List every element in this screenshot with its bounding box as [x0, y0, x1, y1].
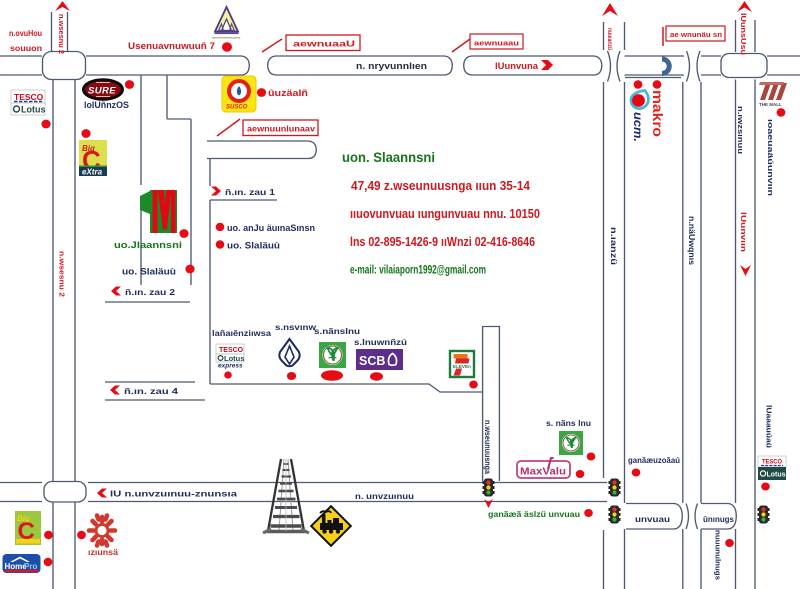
- svg-text:lUunvuna: lUunvuna: [495, 61, 539, 72]
- svg-text:n. unvzuınuu: n. unvzuınuu: [355, 491, 414, 501]
- svg-text:uo.Jlaannsni: uo.Jlaannsni: [114, 240, 182, 251]
- svg-text:makro: makro: [650, 90, 665, 137]
- svg-text:unvuau: unvuau: [635, 514, 670, 524]
- svg-text:ñ.ın. zau 1: ñ.ın. zau 1: [225, 187, 275, 197]
- svg-text:TESCO: TESCO: [14, 92, 44, 102]
- svg-text:s.nãnslnu: s.nãnslnu: [314, 326, 360, 336]
- svg-text:SCB: SCB: [359, 354, 385, 368]
- svg-text:lUaaauúaü: lUaaauúaü: [765, 405, 774, 448]
- svg-text:ganãæã äslzü unvuau: ganãæã äslzü unvuau: [488, 509, 580, 519]
- svg-text:ızıunsä: ızıunsä: [88, 548, 119, 557]
- svg-text:lañaıěnziıwsa: lañaıěnziıwsa: [212, 328, 271, 338]
- svg-text:n.ıanzü: n.ıanzü: [609, 227, 618, 265]
- svg-text:aewnuaau: aewnuaau: [474, 39, 520, 48]
- svg-text:Lotus: Lotus: [21, 105, 46, 115]
- svg-text:aewnuaaU: aewnuaaU: [293, 39, 355, 49]
- svg-text:ııuovunvuau ıungunvuau nnu. 10: ııuovunvuau ıungunvuau nnu. 10150: [350, 206, 540, 221]
- svg-text:uo. anJu äuınaSınsn: uo. anJu äuınaSınsn: [227, 223, 315, 234]
- svg-text:s.lnuwnñzú: s.lnuwnñzú: [354, 337, 407, 347]
- svg-text:lUunsUsu: lUunsUsu: [739, 13, 748, 55]
- svg-text:ñ.ın. zau 4: ñ.ın. zau 4: [124, 386, 178, 396]
- svg-text:THE MALL: THE MALL: [759, 102, 782, 107]
- svg-text:TESCO: TESCO: [219, 347, 244, 354]
- svg-text:souuon: souuon: [10, 43, 42, 53]
- svg-text:uo. Slaläuù: uo. Slaläuù: [122, 267, 176, 278]
- svg-text:express: express: [218, 363, 243, 370]
- svg-text:n.ıwzsınuu: n.ıwzsınuu: [736, 106, 745, 155]
- svg-text:ganãæuzoãaú: ganãæuzoãaú: [628, 455, 680, 465]
- svg-text:lns 02-895-1426-9 ııWnzi 02-41: lns 02-895-1426-9 ııWnzi 02-416-8646: [350, 234, 535, 249]
- svg-text:MaxValu: MaxValu: [520, 467, 566, 478]
- svg-text:uo. Slaläuù: uo. Slaläuù: [227, 241, 280, 252]
- svg-text:annunvuusenuavnu: annunvuusenuavnu: [212, 36, 241, 40]
- svg-text:uon. Slaannsni: uon. Slaannsni: [342, 149, 435, 165]
- svg-text:n.wseunuusnga: n.wseunuusnga: [483, 420, 492, 474]
- svg-text:Lotus: Lotus: [767, 472, 786, 479]
- svg-text:eXtra: eXtra: [82, 168, 103, 177]
- svg-text:s.nsvınw: s.nsvınw: [275, 322, 316, 332]
- svg-text:lU n.unvzuınuu-znunsıa: lU n.unvzuınuu-znunsıa: [110, 489, 237, 499]
- svg-text:ñ.ın. zau 2: ñ.ın. zau 2: [125, 287, 175, 297]
- svg-text:n. nryvunnlıen: n. nryvunnlıen: [356, 61, 427, 71]
- svg-text:ûnınugs: ûnınugs: [703, 514, 734, 524]
- svg-text:ıoaeuaäúunvıın: ıoaeuaäúunvıın: [766, 119, 775, 197]
- svg-text:Usenuavnuwuuñ 7: Usenuavnuwuuñ 7: [128, 41, 215, 52]
- svg-text:nuuıanzü: nuuıanzü: [606, 28, 613, 50]
- svg-text:n.näUwqnıs: n.näUwqnıs: [687, 216, 696, 266]
- svg-text:TESCO: TESCO: [762, 459, 782, 466]
- svg-text:s. nãns lnu: s. nãns lnu: [546, 418, 591, 428]
- svg-text:ELEVEn: ELEVEn: [453, 364, 471, 369]
- svg-text:n.ovuHou: n.ovuHou: [9, 28, 42, 38]
- svg-text:ae wnunäu sn: ae wnunäu sn: [670, 30, 722, 39]
- svg-text:SURE: SURE: [88, 86, 116, 97]
- svg-text:ûuzäalñ: ûuzäalñ: [268, 88, 308, 98]
- svg-text:aewnuunlunaav: aewnuunlunaav: [247, 125, 316, 134]
- svg-text:lolUñnzOS: lolUñnzOS: [84, 100, 129, 110]
- svg-text:lUunvıın: lUunvıın: [739, 212, 748, 253]
- svg-text:SUSCO: SUSCO: [226, 105, 248, 111]
- svg-text:nuuunulnugs: nuuunulnugs: [714, 530, 721, 580]
- svg-text:47,49 z.wseunuusnga ııun 35-14: 47,49 z.wseunuusnga ııun 35-14: [351, 178, 531, 193]
- svg-text:e-mail: vilaiaporn1992@gmail.c: e-mail: vilaiaporn1992@gmail.com: [350, 263, 486, 277]
- svg-text:ucm.: ucm.: [631, 112, 645, 142]
- svg-text:n.wsesnu 2: n.wsesnu 2: [57, 14, 64, 54]
- svg-text:n.wsesnu 2: n.wsesnu 2: [58, 251, 67, 297]
